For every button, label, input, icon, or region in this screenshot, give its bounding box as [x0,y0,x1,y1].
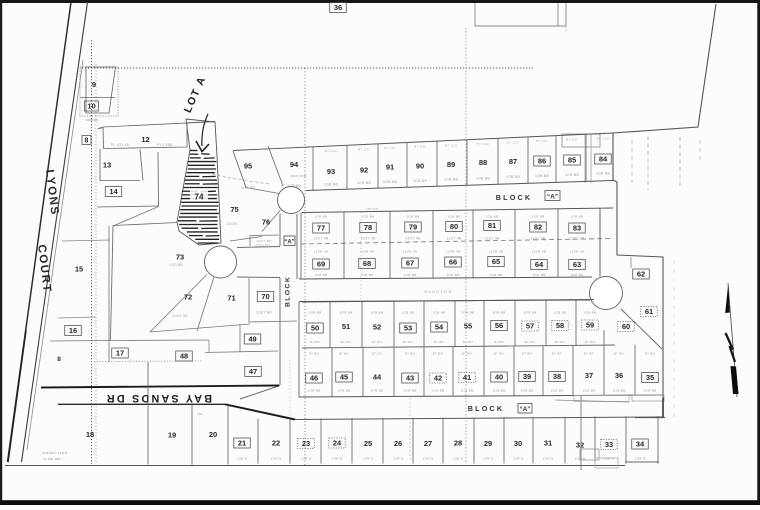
svg-text:46: 46 [310,374,318,383]
svg-text:11OB 4B: 11OB 4B [570,250,584,254]
svg-text:B7 BO: B7 BO [403,340,414,344]
svg-text:1OB BB: 1OB BB [315,273,328,277]
svg-text:1OB BB: 1OB BB [490,273,503,277]
svg-text:PL 1O1 4B: PL 1O1 4B [111,143,129,147]
svg-text:23: 23 [302,439,310,448]
svg-text:11O7 4B: 11O7 4B [484,237,500,241]
svg-text:40: 40 [495,373,503,382]
svg-text:11OB 4B: 11OB 4B [360,250,374,254]
svg-text:62: 62 [637,270,645,279]
svg-text:1OB BB: 1OB BB [383,180,397,184]
svg-text:1OB B: 1OB B [237,457,247,461]
svg-text:1OB BB: 1OB BB [241,186,255,190]
svg-text:B7 11O: B7 11O [358,147,370,151]
svg-text:B7 BO: B7 BO [645,352,656,356]
svg-text:25: 25 [364,439,372,448]
svg-text:1OO7 BO: 1OO7 BO [256,311,272,315]
svg-text:1OO3 BO: 1OO3 BO [254,244,270,248]
svg-text:51: 51 [342,322,350,331]
svg-text:65: 65 [492,257,500,266]
svg-text:21: 21 [238,439,246,448]
svg-text:10: 10 [87,102,95,111]
svg-text:1OB B: 1OB B [332,457,342,461]
svg-text:36: 36 [615,371,623,380]
svg-text:53: 53 [404,324,412,333]
svg-text:77: 77 [317,224,325,233]
svg-text:1OB BB: 1OB BB [521,389,534,393]
svg-text:1OB BB: 1OB BB [432,389,445,393]
svg-text:B7 BO: B7 BO [433,352,444,356]
svg-text:1OB BB: 1OB BB [402,311,415,315]
svg-text:59: 59 [586,321,594,330]
svg-text:78: 78 [364,223,372,232]
svg-text:B7 BO: B7 BO [462,352,473,356]
svg-text:37: 37 [585,371,593,380]
svg-text:27: 27 [424,439,432,448]
svg-text:B7 BO: B7 BO [494,340,505,344]
svg-text:61: 61 [645,307,653,316]
svg-text:1OB BB: 1OB BB [407,215,420,219]
svg-text:B7 11O: B7 11O [536,139,548,143]
svg-text:9: 9 [92,80,96,89]
svg-text:31: 31 [544,439,552,448]
svg-text:38: 38 [553,372,561,381]
svg-text:1OB B: 1OB B [635,457,645,461]
svg-text:1OB BB: 1OB BB [404,389,417,393]
svg-text:1OB BB: 1OB BB [524,311,537,315]
svg-text:63: 63 [573,260,581,269]
svg-text:B7 11O: B7 11O [325,149,337,153]
svg-text:1OB BB: 1OB BB [444,178,458,182]
svg-text:35: 35 [646,373,654,382]
svg-text:1OB BB: 1OB BB [340,311,353,315]
svg-text:56: 56 [495,321,503,330]
svg-text:28: 28 [454,439,462,448]
svg-text:B7 BO: B7 BO [584,352,595,356]
svg-text:34: 34 [636,440,645,449]
svg-text:1OB B: 1OB B [393,457,403,461]
svg-text:92: 92 [360,166,368,175]
svg-text:BLOCK: BLOCK [468,404,505,413]
svg-text:1OB BB: 1OB BB [506,175,520,179]
svg-text:75: 75 [230,205,238,214]
svg-text:B7 BO: B7 BO [309,352,320,356]
svg-text:B7 11O: B7 11O [566,138,578,142]
svg-text:71: 71 [227,294,235,303]
svg-text:1OB BB: 1OB BB [584,311,597,315]
svg-text:72: 72 [184,293,192,302]
svg-text:80: 80 [450,222,458,231]
svg-text:1B7 BB: 1B7 BB [366,207,378,211]
svg-text:1OB BB: 1OB BB [476,176,490,180]
svg-text:13: 13 [103,161,111,170]
svg-text:18: 18 [86,430,94,439]
svg-text:1OB BB: 1OB BB [361,273,374,277]
svg-text:30: 30 [514,439,522,448]
svg-text:20: 20 [209,430,217,439]
svg-text:B7 BO: B7 BO [585,340,596,344]
svg-text:69: 69 [317,260,325,269]
svg-text:22: 22 [272,439,280,448]
svg-text:1OB BB: 1OB BB [493,389,506,393]
svg-text:14: 14 [109,187,118,196]
svg-text:1OO7 4O: 1OO7 4O [172,314,188,318]
svg-text:45: 45 [340,373,348,382]
svg-text:11O7 4B: 11O7 4B [360,237,376,241]
svg-text:49: 49 [248,335,256,344]
svg-text:24: 24 [333,439,342,448]
svg-text:1OB BB: 1OB BB [565,173,579,177]
svg-text:BAY SANDS DR: BAY SANDS DR [105,392,212,404]
svg-text:1OB BB: 1OB BB [571,215,584,219]
svg-text:B7 BO: B7 BO [405,352,416,356]
svg-text:26: 26 [394,439,402,448]
svg-text:1OO5: 1OO5 [227,222,237,226]
svg-text:PL BB 1BB: PL BB 1BB [43,457,61,461]
svg-text:B7 BO: B7 BO [522,352,533,356]
svg-text:B7 11O: B7 11O [477,142,489,146]
svg-text:68: 68 [363,259,371,268]
svg-text:1OB BB: 1OB BB [371,389,384,393]
svg-text:8: 8 [57,356,61,363]
svg-text:74: 74 [195,192,204,201]
svg-text:50: 50 [311,324,319,333]
svg-text:11O7 4B: 11O7 4B [405,237,421,241]
svg-text:81: 81 [488,221,496,230]
svg-text:83: 83 [573,224,581,233]
svg-text:B4B BAY 11B B: B4B BAY 11B B [43,451,68,455]
svg-text:B7 BO: B7 BO [494,352,505,356]
svg-text:15: 15 [75,265,83,274]
svg-text:94: 94 [290,160,299,169]
svg-text:39: 39 [523,372,531,381]
svg-text:1OB BB: 1OB BB [308,389,321,393]
svg-text:1OB B: 1OB B [453,457,463,461]
svg-text:11O7 4B: 11O7 4B [569,237,585,241]
svg-text:67: 67 [406,259,414,268]
svg-text:1OB B: 1OB B [363,457,373,461]
svg-text:1OB BB: 1OB BB [533,273,546,277]
svg-text:“A”: “A” [520,406,531,413]
svg-text:B7 BO: B7 BO [339,352,350,356]
svg-text:1B2B 1BB: 1B2B 1BB [290,174,306,178]
svg-text:BLOCK: BLOCK [285,276,292,307]
svg-text:1OB BB: 1OB BB [324,183,338,187]
svg-text:PL 1OBB: PL 1OBB [157,143,172,147]
svg-text:41: 41 [463,373,471,382]
svg-text:BLOCK: BLOCK [496,193,533,202]
svg-text:47: 47 [249,367,257,376]
svg-text:89: 89 [447,160,455,169]
svg-text:19: 19 [168,431,176,440]
svg-text:1OB B: 1OB B [513,457,523,461]
svg-text:1OB BB: 1OB BB [447,273,460,277]
svg-text:52: 52 [373,323,381,332]
svg-text:60: 60 [622,322,630,331]
svg-text:42: 42 [434,374,442,383]
svg-text:11O7 4B: 11O7 4B [530,237,546,241]
svg-text:91: 91 [386,163,394,172]
svg-text:1OB BB: 1OB BB [362,215,375,219]
svg-text:B7 BO: B7 BO [552,352,563,356]
svg-text:1OB BB: 1OB BB [535,174,549,178]
svg-text:11OB 4B: 11OB 4B [314,250,328,254]
svg-text:76: 76 [262,218,270,227]
svg-text:36: 36 [334,3,342,12]
svg-text:B7 11O: B7 11O [507,140,519,144]
svg-text:B7 BO: B7 BO [555,340,566,344]
svg-text:B7 11O: B7 11O [414,145,426,149]
svg-text:B7 11O: B7 11O [597,136,609,140]
svg-text:B7 11O: B7 11O [384,146,396,150]
svg-text:B7 BO: B7 BO [525,340,536,344]
svg-text:1OB BB: 1OB BB [644,389,657,393]
svg-text:84: 84 [599,155,608,164]
svg-text:B7 11O: B7 11O [445,143,457,147]
svg-text:1OB B: 1OB B [604,457,614,461]
svg-text:“A”: “A” [284,240,294,246]
svg-text:1OB B: 1OB B [301,457,311,461]
svg-text:1OB BB: 1OB BB [493,311,506,315]
svg-text:87: 87 [509,157,517,166]
svg-text:B7 BO: B7 BO [341,340,352,344]
svg-text:1OB BB: 1OB BB [433,311,446,315]
svg-text:11OB 4B: 11OB 4B [532,250,546,254]
svg-text:43: 43 [406,374,414,383]
svg-text:85: 85 [568,156,576,165]
svg-text:1B7: 1B7 [197,412,203,416]
svg-text:1OB BB: 1OB BB [461,389,474,393]
svg-text:1OB BB: 1OB BB [596,172,610,176]
svg-text:11O7 4B: 11O7 4B [313,237,329,241]
svg-text:1OB BB: 1OB BB [583,389,596,393]
svg-text:11OB 4B: 11OB 4B [446,250,460,254]
svg-text:44: 44 [373,373,382,382]
svg-text:11O7 4B: 11O7 4B [446,237,462,241]
svg-text:B7 BO: B7 BO [434,340,445,344]
svg-text:11OB 4B: 11OB 4B [403,250,417,254]
svg-text:70: 70 [261,292,269,301]
svg-text:66: 66 [449,258,457,267]
svg-text:88: 88 [479,158,487,167]
svg-text:86: 86 [538,157,546,166]
svg-text:57: 57 [526,322,534,331]
svg-text:1OB BB: 1OB BB [613,389,626,393]
svg-text:55: 55 [464,322,472,331]
svg-text:73: 73 [176,253,184,262]
svg-text:1OB BB: 1OB BB [486,215,499,219]
svg-text:58: 58 [556,321,564,330]
svg-text:“A”: “A” [547,193,558,200]
svg-text:17: 17 [116,349,124,358]
svg-text:8: 8 [85,138,89,145]
svg-text:1OB BB: 1OB BB [448,215,461,219]
svg-text:1OB BB: 1OB BB [413,179,427,183]
svg-text:1OB B: 1OB B [271,457,281,461]
svg-text:11OB 4B: 11OB 4B [489,250,503,254]
svg-text:90: 90 [416,162,424,171]
svg-text:82: 82 [534,223,542,232]
svg-text:B A N D Y D R: B A N D Y D R [425,290,452,294]
svg-text:16: 16 [69,326,77,335]
svg-text:B7 BO: B7 BO [372,352,383,356]
svg-text:1OB BB: 1OB BB [462,311,475,315]
svg-text:B7 BO: B7 BO [372,340,383,344]
svg-text:1OB BB: 1OB BB [554,311,567,315]
svg-text:1OB BB: 1OB BB [571,273,584,277]
svg-text:48: 48 [180,352,188,361]
svg-text:1OB BB: 1OB BB [338,389,351,393]
svg-text:1OB BB: 1OB BB [357,181,371,185]
svg-text:1OB BB: 1OB BB [371,311,384,315]
svg-text:1OB B: 1OB B [483,457,493,461]
svg-text:B7 BO: B7 BO [463,340,474,344]
svg-text:79: 79 [409,223,417,232]
svg-text:B7 BO: B7 BO [614,352,625,356]
svg-text:32: 32 [576,441,584,450]
svg-text:1OO BB: 1OO BB [169,263,183,267]
svg-text:1OB BB: 1OB BB [309,311,322,315]
svg-text:12: 12 [141,135,149,144]
svg-text:29: 29 [484,439,492,448]
svg-text:1OB B: 1OB B [423,457,433,461]
svg-text:1OB BB: 1OB BB [532,215,545,219]
svg-text:1OO7 BO: 1OO7 BO [256,239,272,243]
svg-text:54: 54 [435,323,444,332]
svg-text:B7 BO: B7 BO [310,340,321,344]
svg-text:64: 64 [535,260,544,269]
svg-text:1OB BB: 1OB BB [315,215,328,219]
svg-text:1OB BB: 1OB BB [551,389,564,393]
svg-text:1OB BB: 1OB BB [404,273,417,277]
svg-text:95: 95 [244,162,252,171]
svg-text:93: 93 [327,167,335,176]
svg-text:1OB B: 1OB B [543,457,553,461]
svg-text:33: 33 [605,440,613,449]
